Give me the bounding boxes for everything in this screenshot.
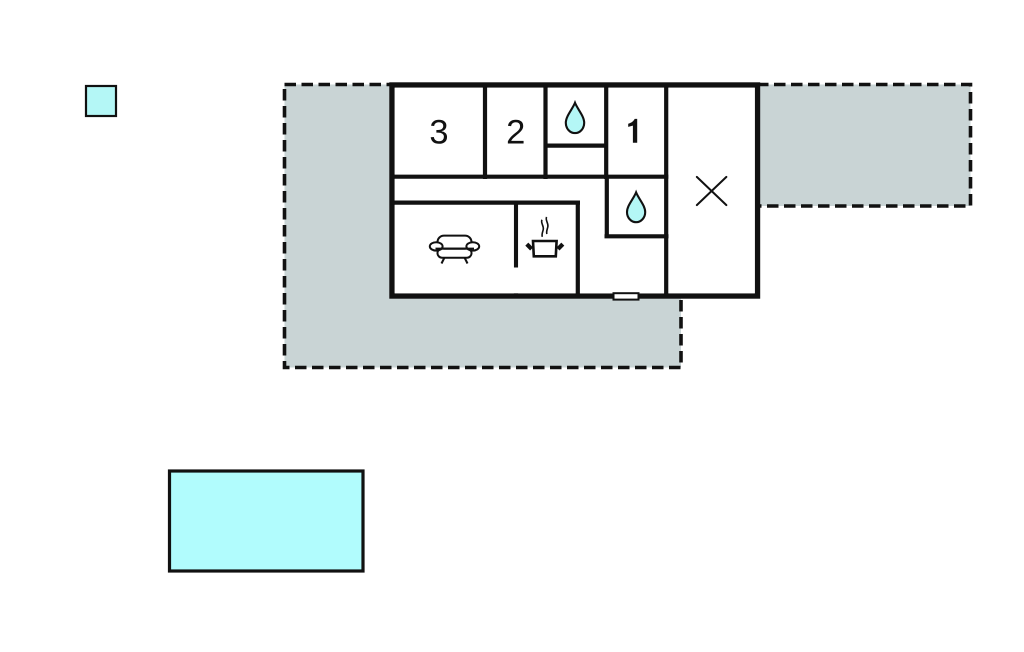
svg-text:2: 2 xyxy=(506,113,525,151)
svg-text:3: 3 xyxy=(429,113,448,151)
